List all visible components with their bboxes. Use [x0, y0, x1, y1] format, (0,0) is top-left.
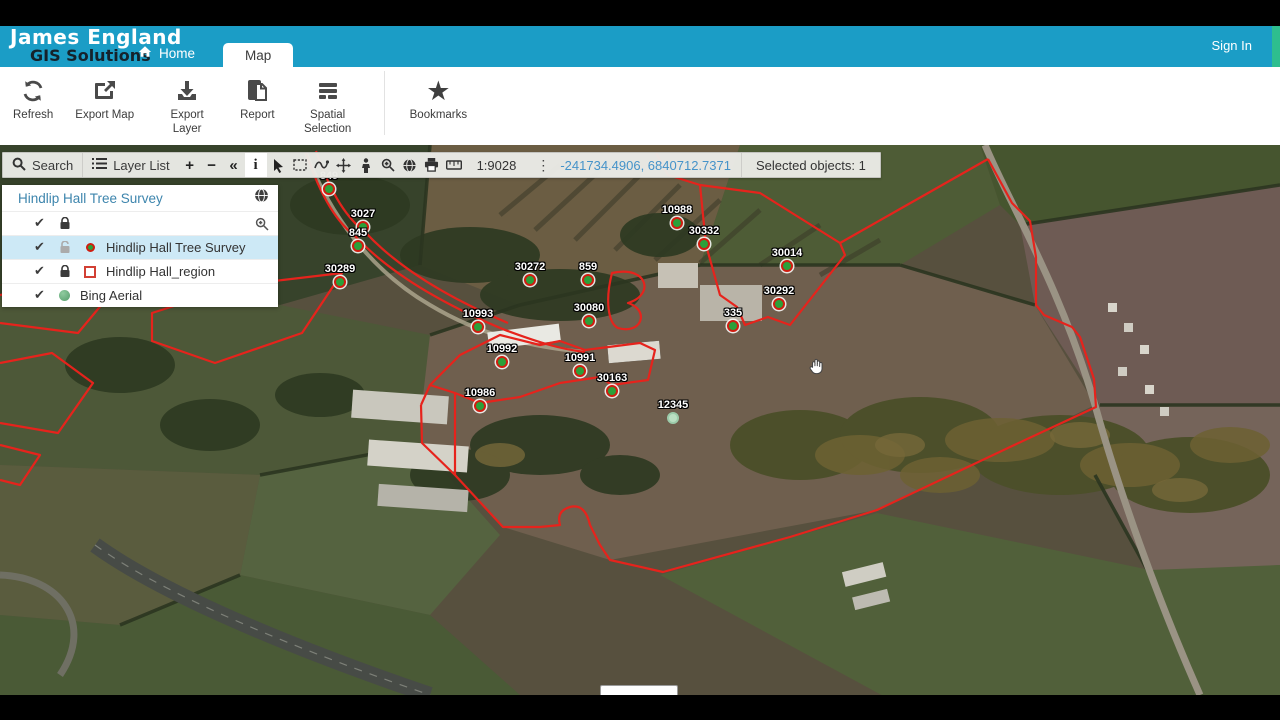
street-view-icon [360, 158, 372, 173]
tree-marker[interactable]: 30332 [698, 238, 710, 250]
export-map-icon [92, 78, 118, 104]
tree-marker[interactable]: 30272 [524, 274, 536, 286]
layer-panel-header: Hindlip Hall Tree Survey [2, 185, 278, 211]
tab-map-label: Map [245, 48, 271, 63]
pointer-select-button[interactable] [267, 153, 289, 177]
export-layer-icon [174, 78, 200, 104]
tree-marker[interactable]: 10991 [574, 365, 586, 377]
layer-name: Hindlip Hall_region [106, 264, 215, 279]
tree-marker-label: 335 [724, 307, 742, 319]
home-icon [138, 45, 152, 61]
layer-visibility-check[interactable]: ✔ [34, 288, 50, 303]
export-map-button[interactable]: Export Map [64, 67, 145, 123]
spatial-selection-icon [315, 78, 341, 104]
layer-row-bing-aerial[interactable]: ✔ Bing Aerial [2, 283, 278, 307]
base-map-globe-icon [402, 158, 417, 173]
header-bar: James England GIS Solutions Home Map Sig… [0, 26, 1280, 67]
layer-list-icon [92, 157, 107, 173]
refresh-button[interactable]: Refresh [2, 67, 64, 123]
ribbon-divider [384, 71, 385, 135]
tree-marker-label: 30292 [764, 285, 795, 297]
tree-marker-label: 12345 [658, 399, 689, 411]
basemap-layer-swatch [58, 290, 70, 301]
tree-marker[interactable]: 30289 [334, 276, 346, 288]
tree-marker-label: 845 [349, 227, 367, 239]
tree-marker-label: 3027 [351, 208, 375, 220]
bookmarks-star-icon: ★ [426, 78, 450, 104]
report-icon [244, 78, 270, 104]
nav-home-label: Home [159, 46, 195, 61]
refresh-label: Refresh [13, 109, 53, 123]
report-label: Report [240, 109, 275, 123]
tree-marker[interactable]: 10993 [472, 321, 484, 333]
tree-marker[interactable]: 845 [352, 240, 364, 252]
base-map-button[interactable] [399, 153, 421, 177]
check-all-icon[interactable]: ✔ [34, 216, 50, 231]
layer-panel-title: Hindlip Hall Tree Survey [18, 191, 254, 206]
search-icon [12, 157, 26, 174]
tree-marker-label: 30272 [515, 261, 546, 273]
rectangle-select-button[interactable] [289, 153, 311, 177]
scale-bar-widget [600, 685, 678, 695]
measure-icon [446, 160, 462, 170]
freehand-draw-icon [314, 159, 329, 171]
ribbon-toolbar: Refresh Export Map Export Layer [0, 67, 1280, 145]
pan-button[interactable] [333, 153, 355, 177]
tree-marker[interactable]: 10986 [474, 400, 486, 412]
more-options-button[interactable]: ⋮ [528, 157, 558, 174]
tree-marker[interactable]: 859 [582, 274, 594, 286]
layer-controls-row: ✔ [2, 211, 278, 235]
pan-icon [336, 158, 351, 173]
lock-all-icon[interactable] [58, 217, 72, 230]
tree-marker[interactable]: 12345 [667, 412, 679, 424]
measure-button[interactable] [443, 153, 465, 177]
accent-strip [1272, 26, 1280, 67]
tree-marker-label: 10988 [662, 204, 693, 216]
hand-cursor [807, 357, 826, 381]
layer-row-region[interactable]: ✔ Hindlip Hall_region [2, 259, 278, 283]
zoom-to-selection-icon [381, 158, 395, 172]
lock-closed-icon[interactable] [58, 265, 72, 278]
tree-marker[interactable]: 30163 [606, 385, 618, 397]
zoom-to-layer-icon[interactable] [255, 217, 269, 231]
spatial-selection-button[interactable]: Spatial Selection [286, 67, 370, 137]
tree-marker[interactable]: 30292 [773, 298, 785, 310]
layer-visibility-check[interactable]: ✔ [34, 240, 50, 255]
tree-marker[interactable]: 30014 [781, 260, 793, 272]
layer-name: Hindlip Hall Tree Survey [106, 240, 245, 255]
tree-marker[interactable]: 10988 [671, 217, 683, 229]
tree-marker[interactable]: 10992 [496, 356, 508, 368]
tree-marker-label: 30163 [597, 372, 628, 384]
zoom-to-selection-button[interactable] [377, 153, 399, 177]
report-button[interactable]: Report [229, 67, 286, 123]
layer-row-tree-survey[interactable]: ✔ Hindlip Hall Tree Survey [2, 235, 278, 259]
main-nav: Home Map [138, 43, 293, 67]
globe-icon[interactable] [254, 188, 269, 208]
layer-visibility-check[interactable]: ✔ [34, 264, 50, 279]
bookmarks-label: Bookmarks [410, 109, 468, 123]
search-label: Search [32, 158, 73, 173]
bookmarks-button[interactable]: ★ Bookmarks [399, 67, 479, 123]
tree-marker-label: 859 [579, 261, 597, 273]
zoom-in-button[interactable]: + [179, 153, 201, 177]
tree-marker-label: 30332 [689, 225, 720, 237]
tree-marker[interactable]: 849 [323, 183, 335, 195]
map-viewport[interactable]: 8493027845302893027285910988303323001433… [0, 145, 1280, 695]
point-layer-swatch [84, 243, 96, 252]
nav-home[interactable]: Home [138, 45, 195, 67]
coordinates-readout: -241734.4906, 6840712.7371 [558, 158, 741, 173]
sign-in-label: Sign In [1212, 38, 1252, 53]
rectangle-select-icon [293, 159, 307, 171]
tree-marker[interactable]: 30080 [583, 315, 595, 327]
layer-list-button[interactable]: Layer List [83, 153, 178, 177]
collapse-toolbar-button[interactable]: « [223, 153, 245, 177]
export-layer-label: Export Layer [156, 109, 218, 137]
tree-marker-label: 30289 [325, 263, 356, 275]
freehand-draw-button[interactable] [311, 153, 333, 177]
tree-marker-label: 10986 [465, 387, 496, 399]
spatial-selection-label: Spatial Selection [297, 109, 359, 137]
tree-marker-label: 10993 [463, 308, 494, 320]
export-map-label: Export Map [75, 109, 134, 123]
scale-indicator[interactable]: 1:9028 [465, 158, 529, 173]
tree-marker-label: 30014 [772, 247, 803, 259]
lock-open-icon[interactable] [58, 241, 72, 254]
layer-list-panel: Hindlip Hall Tree Survey ✔ ✔ [2, 185, 278, 307]
tree-marker-label: 30080 [574, 302, 605, 314]
zoom-out-button[interactable]: − [201, 153, 223, 177]
region-layer-swatch [84, 266, 96, 278]
tree-marker-label: 10992 [487, 343, 518, 355]
tree-marker-label: 10991 [565, 352, 596, 364]
pointer-select-icon [271, 158, 285, 173]
refresh-icon [20, 78, 46, 104]
layer-list-label: Layer List [113, 158, 169, 173]
street-view-button[interactable] [355, 153, 377, 177]
print-icon [424, 158, 439, 172]
tab-map[interactable]: Map [223, 43, 293, 67]
tree-marker[interactable]: 335 [727, 320, 739, 332]
identify-button[interactable]: i [245, 153, 267, 177]
sign-in-link[interactable]: Sign In [1212, 38, 1252, 53]
app-window: James England GIS Solutions Home Map Sig… [0, 0, 1280, 720]
selected-objects-count: Selected objects: 1 [742, 158, 880, 173]
export-layer-button[interactable]: Export Layer [145, 67, 229, 137]
print-button[interactable] [421, 153, 443, 177]
layer-name: Bing Aerial [80, 288, 142, 303]
search-button[interactable]: Search [3, 153, 82, 177]
map-toolbar: Search Layer List + − « i [2, 152, 881, 178]
